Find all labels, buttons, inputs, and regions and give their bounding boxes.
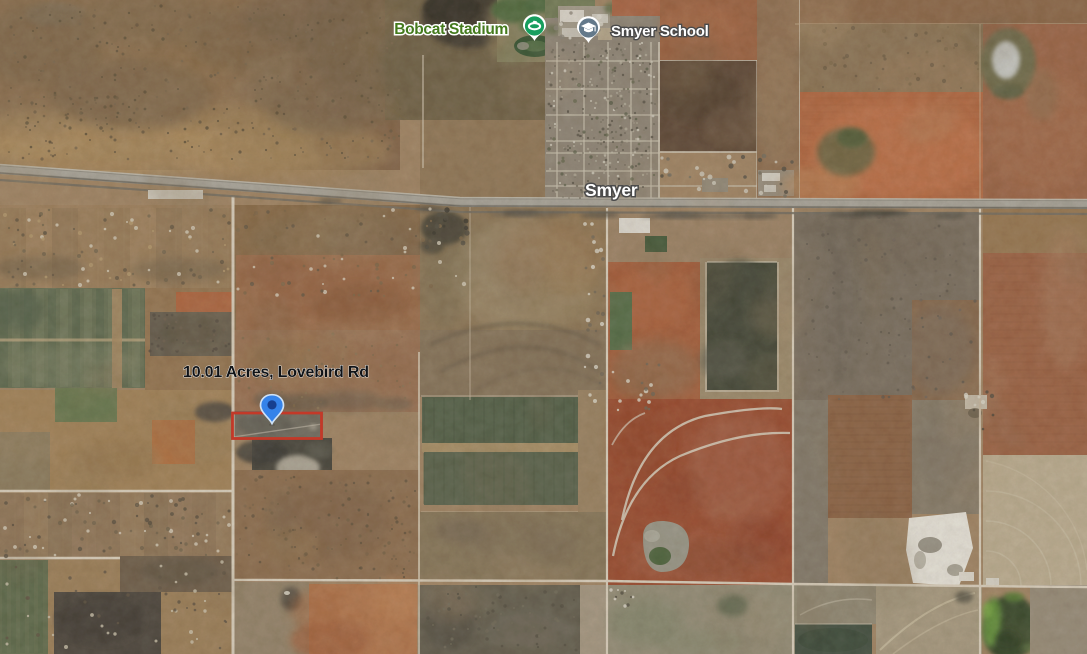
- svg-text:10.01 Acres, Lovebird Rd: 10.01 Acres, Lovebird Rd: [183, 364, 369, 381]
- svg-text:Smyer: Smyer: [585, 180, 638, 200]
- svg-text:Bobcat Stadium: Bobcat Stadium: [394, 21, 508, 38]
- svg-text:Smyer School: Smyer School: [611, 23, 709, 40]
